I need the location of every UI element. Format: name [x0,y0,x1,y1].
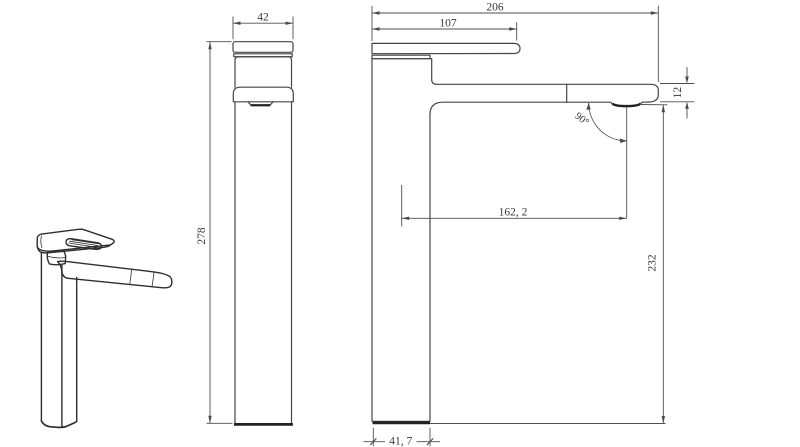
dim-arrow [619,217,627,220]
dim-arrow [402,217,410,220]
dim-arrow [620,139,627,144]
dim-arrow [509,27,517,30]
perspective-spout-endline [152,273,154,287]
side-aerator-underline [613,104,641,107]
dim-arrow [233,22,241,25]
dim-arrow [286,22,294,25]
dim-spout-reach-label: 162, 2 [499,206,528,218]
dim-arrow [372,27,380,30]
dim-spout-thickness-label: 12 [672,87,684,99]
side-handle-lever [372,43,520,53]
dim-arrow [662,416,665,424]
dim-side-overall-label: 206 [486,2,504,14]
drawing-svg: 42 278 206 107 12 90° [0,0,800,447]
dim-arrow [662,105,665,113]
dim-side-handle-length: 107 [372,17,517,40]
dim-arrow [208,416,211,424]
front-neck-band [234,54,292,57]
dim-spout-angle: 90° [572,103,627,219]
dim-front-height-lines [207,42,233,424]
front-handle-cap [233,42,293,53]
dim-outlet-height: 232 [640,105,668,424]
perspective-spout-separator [130,270,132,283]
dim-outlet-height-label: 232 [647,254,659,272]
dim-front-width: 42 [233,11,293,39]
front-spout-band [233,87,293,102]
dim-front-height-label: 278 [196,227,208,245]
dim-spout-angle-label: 90° [572,111,590,129]
front-view [233,42,293,425]
dim-base-depth-label: 41, 7 [389,436,412,447]
side-view [372,43,666,423]
front-upper-body [235,57,292,87]
perspective-column-base [41,421,76,428]
dim-front-height: 278 [196,42,233,424]
perspective-handle-edge [41,236,42,248]
dim-side-overall-length: 206 [372,2,658,83]
perspective-neck-line [48,256,65,258]
dim-front-width-label: 42 [257,11,269,23]
perspective-view [37,229,172,427]
dim-side-handle-label: 107 [439,17,457,29]
dim-arrow [208,42,211,50]
dim-base-depth: 41, 7 [364,428,441,447]
dim-arrow [685,76,689,83]
dim-angle-arc [589,103,627,141]
dim-arrow [372,11,380,14]
side-body-outline [372,59,658,422]
technical-drawing: 42 278 206 107 12 90° [0,0,800,447]
dim-arrow [685,102,689,109]
dim-spout-thickness: 12 [660,67,695,119]
dim-spout-reach: 162, 2 [402,185,627,227]
perspective-spout [58,261,172,288]
dim-arrow [586,103,590,110]
dim-arrow [651,11,659,14]
